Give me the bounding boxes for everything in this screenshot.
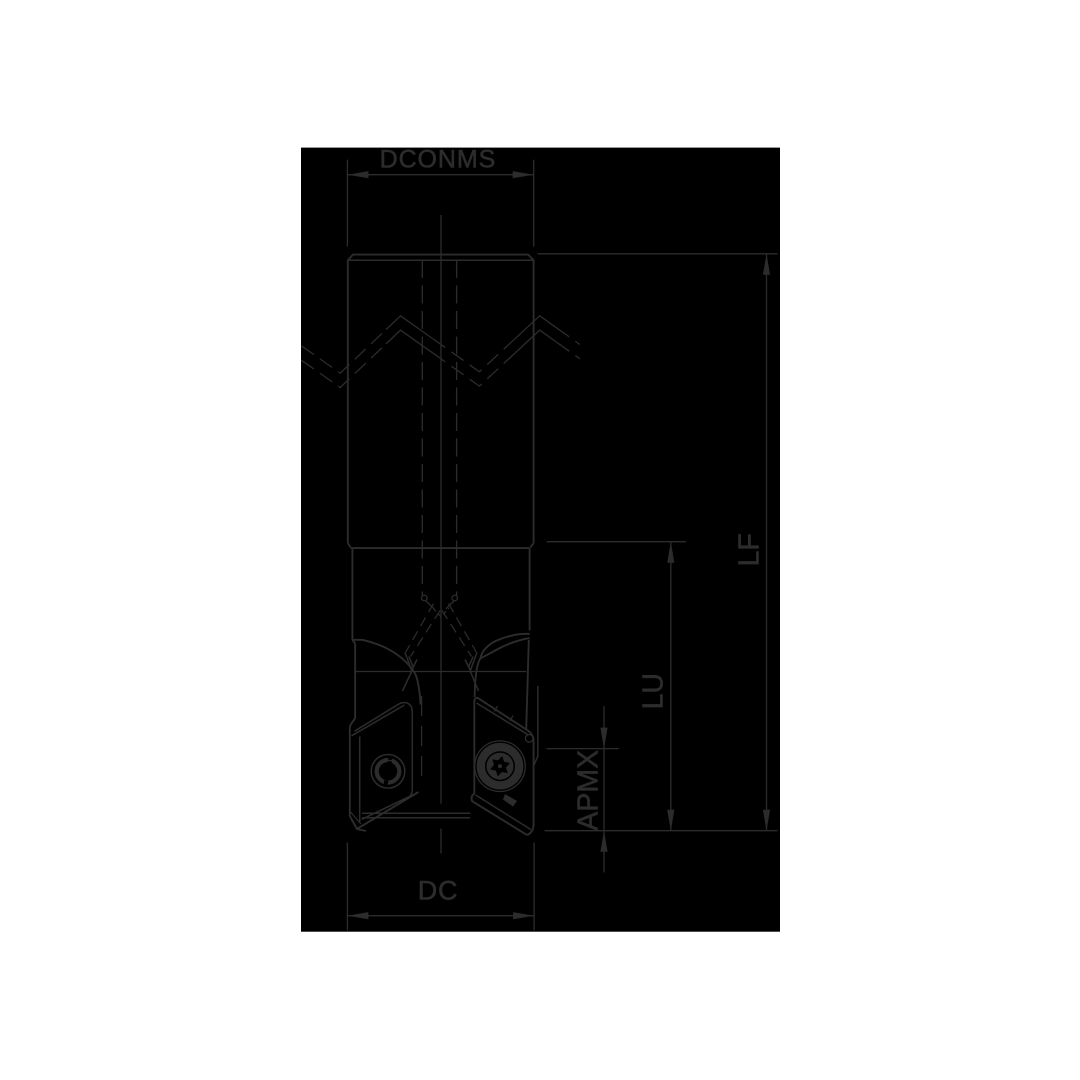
svg-text:LU: LU [638, 673, 670, 709]
svg-text:DCONMS: DCONMS [380, 146, 497, 174]
svg-text:APMX: APMX [572, 750, 604, 831]
svg-text:DC: DC [418, 876, 459, 906]
svg-text:LF: LF [733, 533, 765, 566]
